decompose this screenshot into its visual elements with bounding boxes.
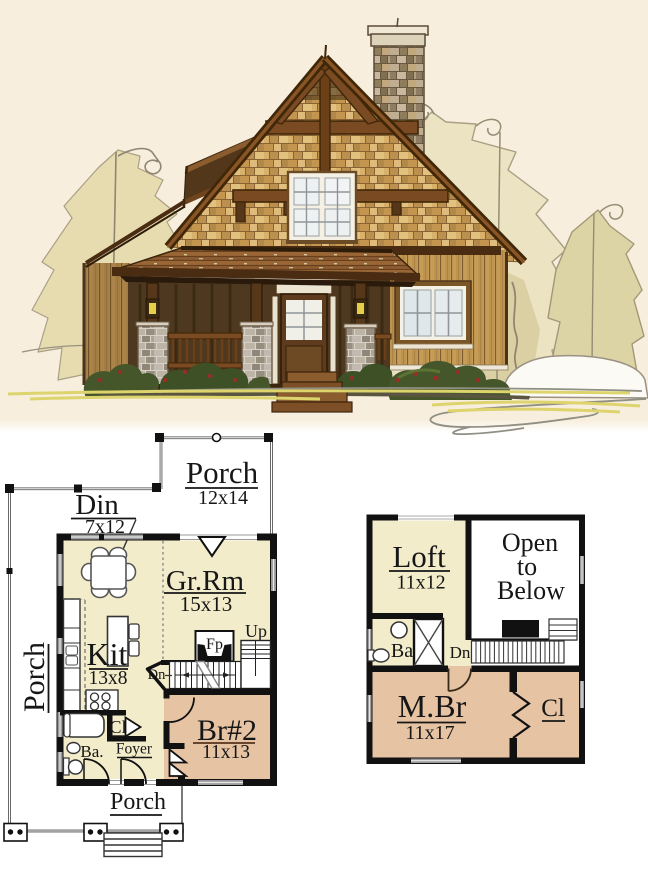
svg-text:13x8: 13x8 <box>89 668 128 689</box>
svg-text:Cl: Cl <box>109 717 126 737</box>
svg-text:Dn: Dn <box>148 667 166 683</box>
svg-text:Below: Below <box>497 576 565 605</box>
svg-text:15x13: 15x13 <box>180 592 233 616</box>
svg-text:11x13: 11x13 <box>202 742 250 763</box>
svg-text:Up: Up <box>245 621 267 641</box>
svg-text:Cl: Cl <box>541 695 565 722</box>
svg-text:11x12: 11x12 <box>396 572 445 594</box>
svg-text:Loft: Loft <box>392 539 446 574</box>
svg-text:Porch: Porch <box>110 789 166 815</box>
svg-text:Ba.: Ba. <box>80 742 103 761</box>
svg-text:Foyer: Foyer <box>116 741 153 758</box>
svg-text:Dn: Dn <box>450 643 471 662</box>
svg-text:11x17: 11x17 <box>405 722 454 744</box>
svg-text:Porch: Porch <box>186 455 259 490</box>
svg-text:Porch: Porch <box>18 642 51 712</box>
svg-text:Ba: Ba <box>391 640 413 662</box>
svg-text:M.Br: M.Br <box>398 688 467 724</box>
svg-text:Fp: Fp <box>206 636 223 653</box>
svg-text:12x14: 12x14 <box>198 487 248 509</box>
svg-text:Kit: Kit <box>87 636 128 672</box>
